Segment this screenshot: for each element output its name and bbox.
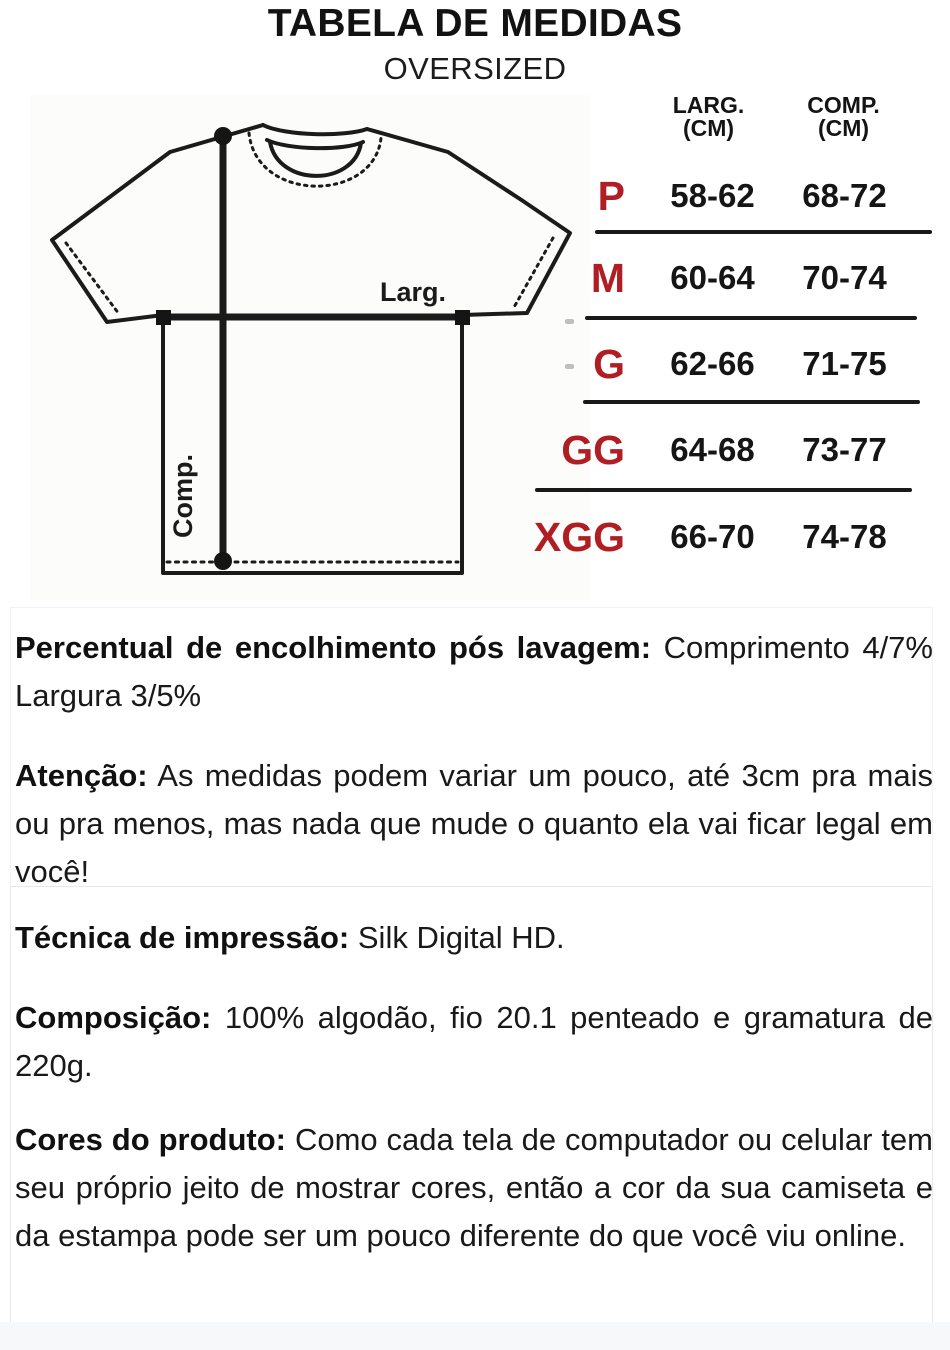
tshirt-left-sleeve (52, 125, 263, 322)
composition-info: Composição: 100% algodão, fio 20.1 pente… (15, 994, 933, 1090)
comp-value: 74-78 (782, 513, 907, 561)
width-line-endpoint-left (156, 310, 171, 325)
larg-value: 62-66 (650, 340, 775, 388)
shrinkage-note: Percentual de encolhimento pós lavagem: … (15, 624, 933, 720)
row-divider (535, 488, 912, 492)
print-technique-text: Silk Digital HD. (358, 920, 565, 955)
size-label: G (530, 340, 625, 388)
larg-value: 58-62 (650, 172, 775, 220)
colors-info: Cores do produto: Como cada tela de comp… (15, 1116, 933, 1260)
attention-note-label: Atenção: (15, 758, 148, 793)
size-label: M (530, 254, 625, 302)
size-label: GG (530, 426, 625, 474)
row-divider (595, 230, 932, 234)
width-label: Larg. (380, 277, 446, 307)
attention-note: Atenção: As medidas podem variar um pouc… (15, 752, 933, 896)
composition-label: Composição: (15, 1000, 211, 1035)
width-line-endpoint-right (455, 310, 470, 325)
comp-value: 71-75 (782, 340, 907, 388)
tshirt-diagram: Larg. Comp. (30, 95, 590, 600)
page-subtitle: OVERSIZED (0, 51, 950, 87)
larg-value: 64-68 (650, 426, 775, 474)
row-divider (585, 316, 917, 320)
comp-value: 70-74 (782, 254, 907, 302)
bottom-strip (0, 1322, 950, 1350)
comp-value: 68-72 (782, 172, 907, 220)
size-label: P (530, 172, 625, 220)
length-line-endpoint-top (214, 127, 232, 145)
print-technique-info: Técnica de impressão: Silk Digital HD. (15, 914, 933, 962)
page-title: TABELA DE MEDIDAS (0, 2, 950, 46)
larg-value: 60-64 (650, 254, 775, 302)
column-header-comp: COMP. (CM) (781, 94, 906, 140)
size-label: XGG (530, 513, 625, 561)
print-technique-label: Técnica de impressão: (15, 920, 349, 955)
shrinkage-note-label: Percentual de encolhimento pós lavagem: (15, 630, 651, 665)
stray-mark (565, 319, 574, 324)
collar (263, 125, 367, 176)
comp-value: 73-77 (782, 426, 907, 474)
colors-info-label: Cores do produto: (15, 1122, 286, 1157)
tshirt-body-outline (163, 317, 462, 573)
header: TABELA DE MEDIDAS OVERSIZED (0, 0, 950, 87)
length-label: Comp. (168, 454, 198, 538)
column-header-larg: LARG. (CM) (646, 94, 771, 140)
row-divider (583, 400, 920, 404)
attention-note-text: As medidas podem variar um pouco, até 3c… (15, 758, 933, 889)
larg-value: 66-70 (650, 513, 775, 561)
length-line-endpoint-bottom (214, 552, 232, 570)
